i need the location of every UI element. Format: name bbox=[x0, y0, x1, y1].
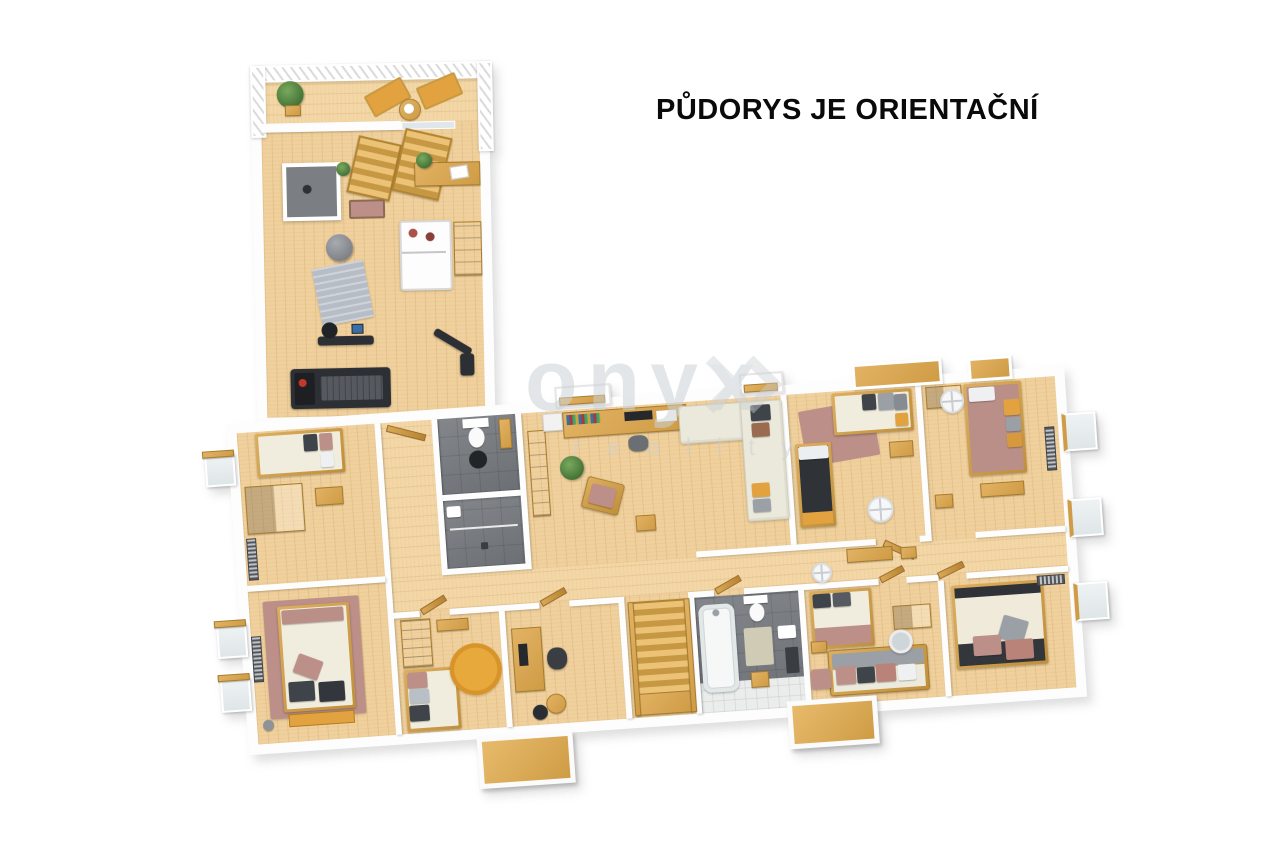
pillow bbox=[409, 705, 430, 722]
desk-paper bbox=[656, 410, 677, 422]
hall-stool bbox=[900, 546, 917, 559]
bay-window bbox=[967, 355, 1013, 382]
pillow bbox=[409, 688, 430, 703]
pillow bbox=[319, 433, 333, 451]
pillow bbox=[812, 593, 831, 608]
pillow bbox=[875, 663, 896, 682]
pillow bbox=[832, 592, 851, 607]
bed bbox=[951, 579, 1049, 669]
pillow bbox=[303, 434, 318, 452]
pillow bbox=[897, 663, 916, 680]
pillow bbox=[751, 482, 770, 497]
bed-blanket bbox=[803, 511, 834, 525]
bed bbox=[255, 428, 346, 478]
page-title: PŮDORYS JE ORIENTAČNÍ bbox=[656, 94, 1039, 127]
sofa-l-top bbox=[678, 402, 748, 445]
upper-wing bbox=[250, 61, 496, 428]
washbasin bbox=[446, 506, 461, 518]
floorplan-canvas: PŮDORYS JE ORIENTAČNÍ bbox=[0, 0, 1280, 853]
bed bbox=[831, 388, 914, 435]
monitor bbox=[518, 644, 529, 667]
pillow bbox=[798, 445, 829, 460]
yoga-mat bbox=[312, 260, 374, 327]
wardrobe bbox=[244, 483, 305, 535]
window bbox=[216, 623, 248, 659]
pillow bbox=[1007, 433, 1023, 448]
bath-stool bbox=[751, 671, 770, 688]
stair-landing bbox=[636, 690, 693, 716]
pillow bbox=[861, 394, 876, 411]
bed bbox=[963, 380, 1027, 476]
pillow bbox=[1003, 399, 1020, 416]
pillow bbox=[407, 672, 428, 689]
bathtub bbox=[698, 603, 740, 693]
pillow bbox=[973, 634, 1002, 656]
bath-cabinet bbox=[785, 647, 800, 674]
pillow bbox=[894, 393, 908, 410]
stool bbox=[935, 493, 954, 508]
bath-mat bbox=[744, 626, 775, 666]
spin-bike-console bbox=[351, 324, 363, 334]
wardrobe bbox=[892, 603, 932, 630]
weight-stack bbox=[460, 353, 474, 375]
bay-sill bbox=[559, 394, 605, 405]
window bbox=[1073, 581, 1110, 621]
bookshelf bbox=[400, 618, 433, 668]
armchair-cushion bbox=[588, 483, 617, 508]
shower-cabin bbox=[282, 162, 341, 221]
window bbox=[1061, 411, 1098, 451]
terrace-railing-right bbox=[477, 61, 494, 151]
pillow bbox=[895, 412, 909, 426]
daybed-sofa bbox=[827, 644, 930, 697]
gym-bench bbox=[349, 199, 385, 219]
bed bbox=[277, 602, 356, 713]
plant-pot bbox=[285, 105, 301, 116]
shower-drain bbox=[481, 542, 488, 549]
pillow bbox=[320, 452, 334, 468]
pillow bbox=[1005, 417, 1021, 432]
pillow bbox=[877, 392, 894, 410]
bay-window bbox=[739, 371, 784, 396]
pillow bbox=[318, 680, 345, 702]
pillow bbox=[751, 422, 770, 437]
pillow bbox=[288, 680, 315, 702]
wall-shelf bbox=[436, 618, 469, 632]
side-table bbox=[811, 641, 828, 654]
bay-sill bbox=[744, 382, 778, 392]
pillow bbox=[750, 404, 771, 421]
coffee-table bbox=[635, 514, 656, 531]
pingpong-table bbox=[399, 220, 452, 291]
dresser bbox=[889, 440, 914, 458]
outdoor-bench bbox=[787, 695, 880, 749]
pillow bbox=[857, 666, 876, 683]
side-table bbox=[315, 486, 344, 506]
radiator bbox=[1037, 574, 1066, 586]
window bbox=[220, 677, 252, 713]
pillow bbox=[835, 666, 856, 685]
bay-window bbox=[554, 383, 611, 409]
window bbox=[204, 454, 236, 488]
treadmill-console bbox=[294, 373, 315, 405]
treadmill-belt bbox=[321, 375, 383, 400]
main-wing bbox=[226, 365, 1087, 755]
pillow bbox=[753, 498, 772, 512]
pillow bbox=[968, 386, 995, 402]
ottoman bbox=[811, 668, 832, 689]
outdoor-bench bbox=[476, 731, 575, 790]
desk-chair bbox=[628, 435, 649, 452]
gym-shelf bbox=[453, 221, 482, 276]
printer bbox=[542, 413, 563, 432]
bed bbox=[795, 442, 837, 528]
washbasin bbox=[777, 625, 796, 639]
pillow bbox=[1005, 638, 1034, 660]
window bbox=[1067, 497, 1104, 537]
wall bbox=[919, 535, 931, 542]
wc-shelf bbox=[498, 418, 512, 449]
